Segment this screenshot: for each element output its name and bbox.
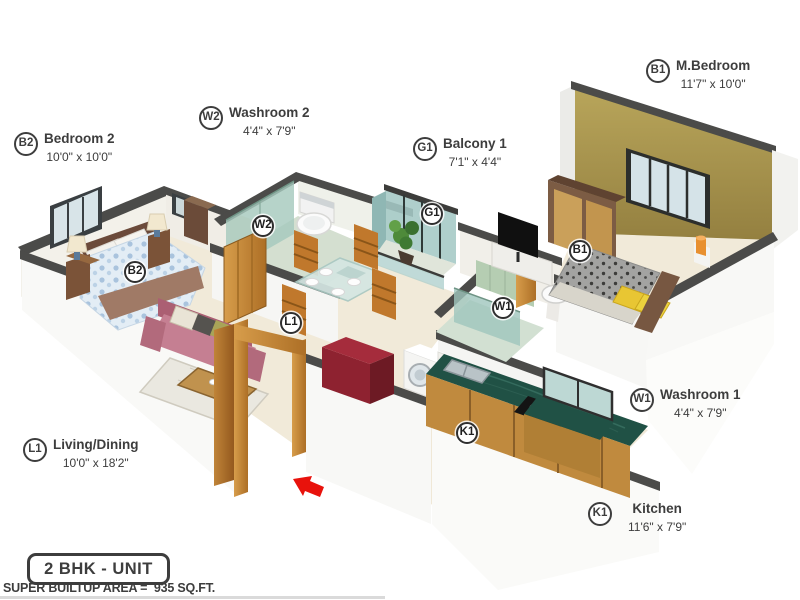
floorplan-page: B2 W2 G1 B1 W1 K1 L1 B2 Bedroom 2 10'0" … (0, 0, 800, 600)
callout-washroom1: W1 Washroom 1 4'4" x 7'9" (630, 388, 741, 422)
room-name: Washroom 1 (660, 387, 741, 402)
room-dims: 11'6" x 7'9" (628, 520, 686, 534)
room-dims: 10'0" x 18'2" (63, 456, 129, 470)
cropped-text-line (0, 596, 385, 599)
entrance-arrow (293, 476, 324, 497)
plan-badge-mbedroom: B1 (569, 240, 591, 262)
room-name: Living/Dining (53, 437, 139, 452)
room-name: Bedroom 2 (44, 131, 115, 146)
callout-living-dining: L1 Living/Dining 10'0" x 18'2" (23, 438, 139, 472)
room-code-badge: G1 (413, 137, 437, 161)
room-name: Balcony 1 (443, 136, 507, 151)
callout-mbedroom: B1 M.Bedroom 11'7" x 10'0" (646, 59, 750, 93)
plan-badge-balcony1: G1 (421, 203, 443, 225)
room-code-badge: W2 (199, 106, 223, 130)
room-code-badge: W1 (630, 388, 654, 412)
room-dims: 4'4" x 7'9" (674, 406, 726, 420)
callout-washroom2: W2 Washroom 2 4'4" x 7'9" (199, 106, 310, 140)
room-dims: 11'7" x 10'0" (681, 77, 746, 91)
room-dims: 10'0" x 10'0" (46, 150, 112, 164)
callout-bedroom2: B2 Bedroom 2 10'0" x 10'0" (14, 132, 115, 166)
room-code-badge: B2 (14, 132, 38, 156)
plan-badge-kitchen: K1 (456, 422, 478, 444)
plan-badge-living: L1 (280, 312, 302, 334)
plan-badge-washroom1: W1 (492, 297, 514, 319)
room-name: Kitchen (632, 501, 682, 516)
room-code-badge: B1 (646, 59, 670, 83)
room-code-badge: K1 (588, 502, 612, 526)
plan-badge-washroom2: W2 (252, 215, 274, 237)
room-dims: 7'1" x 4'4" (449, 155, 501, 169)
plan-badge-bedroom2: B2 (124, 261, 146, 283)
room-dims: 4'4" x 7'9" (243, 124, 295, 138)
room-name: M.Bedroom (676, 58, 750, 73)
super-builtup-area-label: SUPER BUILTUP AREA = 935 SQ.FT. (3, 581, 215, 595)
callout-kitchen: K1 Kitchen 11'6" x 7'9" (588, 502, 686, 536)
room-name: Washroom 2 (229, 105, 310, 120)
callout-balcony1: G1 Balcony 1 7'1" x 4'4" (413, 137, 507, 171)
room-code-badge: L1 (23, 438, 47, 462)
